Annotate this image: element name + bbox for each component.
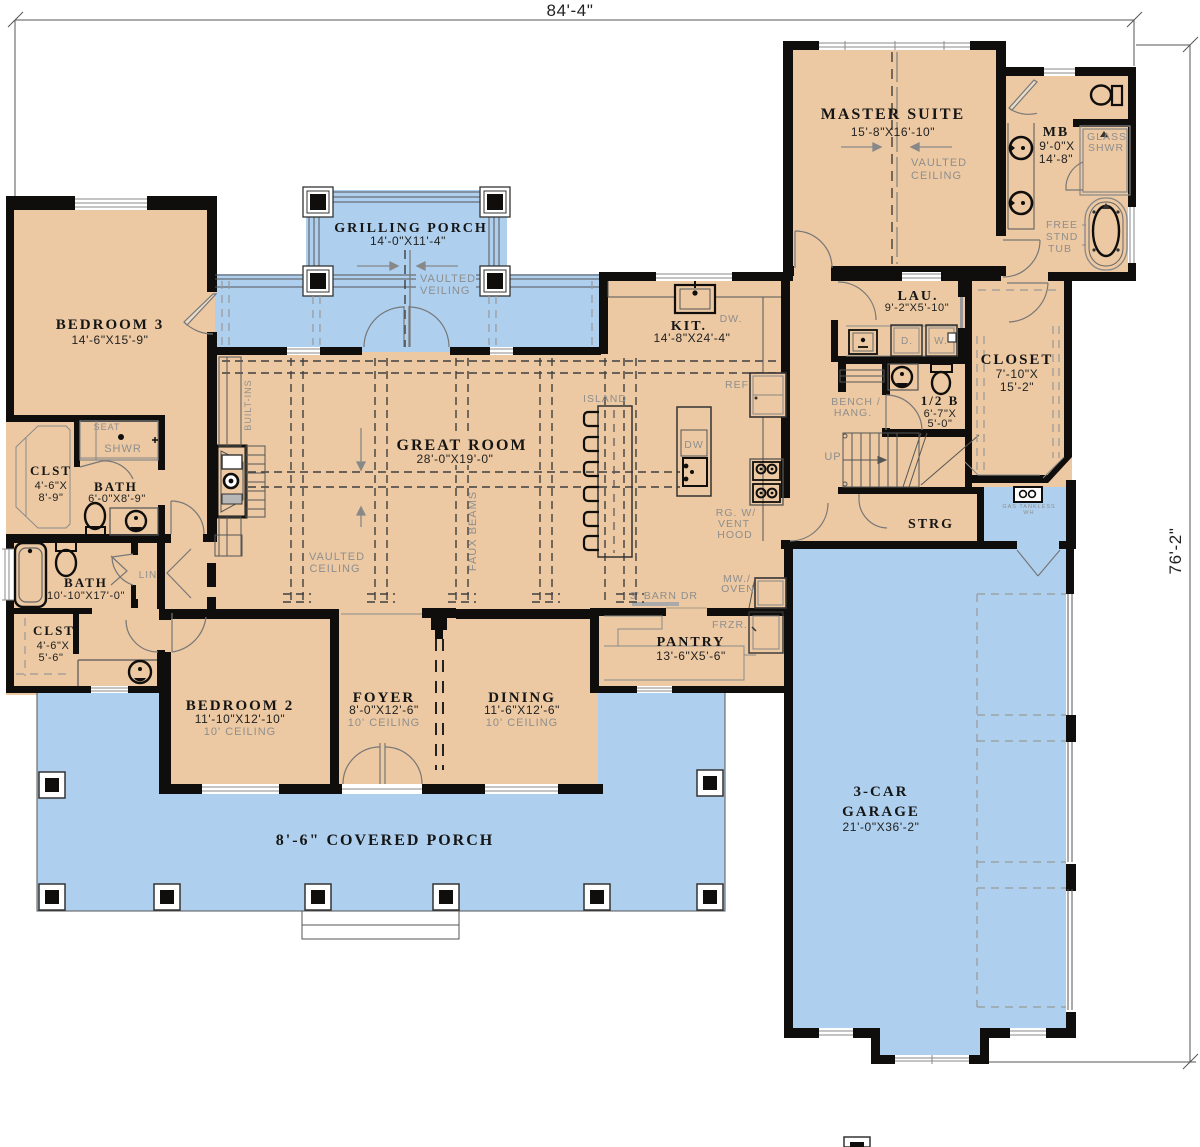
svg-text:10' CEILING: 10' CEILING	[486, 717, 558, 729]
svg-text:PANTRY: PANTRY	[657, 635, 726, 650]
svg-text:5'-0": 5'-0"	[928, 418, 953, 430]
svg-text:CLOSET: CLOSET	[981, 352, 1054, 368]
svg-text:SHWR: SHWR	[104, 443, 142, 455]
svg-text:10' CEILING: 10' CEILING	[204, 726, 276, 738]
svg-text:14'-8"X24'-4": 14'-8"X24'-4"	[654, 331, 731, 345]
svg-text:5'-6": 5'-6"	[39, 652, 64, 664]
svg-text:84'-4": 84'-4"	[547, 1, 594, 20]
svg-text:1/2 B: 1/2 B	[921, 393, 960, 408]
svg-text:14'-8": 14'-8"	[1039, 152, 1073, 166]
svg-text:STRG: STRG	[908, 517, 954, 532]
svg-text:7'-10"X: 7'-10"X	[996, 367, 1039, 381]
svg-text:10' CEILING: 10' CEILING	[348, 717, 420, 729]
svg-text:HOOD: HOOD	[717, 529, 753, 541]
svg-text:4'-6"X: 4'-6"X	[35, 480, 68, 492]
svg-text:STND: STND	[1046, 231, 1079, 243]
svg-text:REF: REF	[725, 379, 749, 391]
svg-text:SEAT: SEAT	[94, 422, 121, 432]
svg-text:TUB: TUB	[1048, 243, 1072, 255]
svg-text:FREE: FREE	[1046, 219, 1078, 231]
svg-text:13'-6"X5'-6": 13'-6"X5'-6"	[656, 649, 726, 663]
svg-text:MB: MB	[1043, 125, 1070, 140]
svg-text:BATH: BATH	[64, 575, 108, 590]
svg-text:HANG.: HANG.	[834, 407, 872, 419]
svg-text:LIN: LIN	[139, 570, 158, 581]
svg-text:UP: UP	[824, 451, 841, 463]
svg-text:76'-2": 76'-2"	[1166, 528, 1185, 575]
svg-text:28'-0"X19'-0": 28'-0"X19'-0"	[417, 452, 494, 466]
svg-text:6'-0"X8'-9": 6'-0"X8'-9"	[88, 493, 146, 505]
svg-text:VAULTED: VAULTED	[911, 157, 967, 169]
svg-text:WH: WH	[1023, 510, 1034, 516]
svg-text:8'-6" COVERED PORCH: 8'-6" COVERED PORCH	[276, 832, 494, 849]
svg-text:8'-9": 8'-9"	[39, 492, 64, 504]
svg-text:DW.: DW.	[720, 313, 743, 325]
svg-text:11'-6"X12'-6": 11'-6"X12'-6"	[484, 703, 560, 717]
svg-text:DW: DW	[684, 439, 704, 451]
svg-text:9'-0"X: 9'-0"X	[1039, 139, 1075, 153]
svg-text:15'-8"X16'-10": 15'-8"X16'-10"	[851, 125, 935, 139]
svg-text:4'-6"X: 4'-6"X	[37, 640, 70, 652]
svg-text:9'-2"X5'-10": 9'-2"X5'-10"	[885, 302, 949, 314]
svg-text:CEILING: CEILING	[911, 170, 962, 182]
svg-text:BEDROOM 3: BEDROOM 3	[56, 317, 164, 333]
svg-text:14'-6"X15'-9": 14'-6"X15'-9"	[72, 333, 149, 347]
svg-text:VAULTED: VAULTED	[420, 273, 476, 285]
svg-text:3' BARN DR: 3' BARN DR	[630, 590, 698, 602]
svg-text:11'-10"X12'-10": 11'-10"X12'-10"	[195, 712, 286, 726]
svg-text:FRZR.: FRZR.	[712, 619, 748, 631]
svg-text:SHWR: SHWR	[1088, 142, 1124, 154]
svg-text:GARAGE: GARAGE	[842, 804, 920, 820]
svg-text:8'-0"X12'-6": 8'-0"X12'-6"	[349, 703, 419, 717]
svg-text:MASTER SUITE: MASTER SUITE	[821, 106, 965, 123]
svg-text:3-CAR: 3-CAR	[854, 784, 909, 800]
svg-text:OVEN: OVEN	[721, 583, 755, 595]
svg-text:W.: W.	[934, 336, 948, 347]
svg-text:FAUX BEAMS: FAUX BEAMS	[467, 491, 479, 571]
svg-text:ISLAND: ISLAND	[583, 393, 627, 405]
svg-text:CLST: CLST	[33, 623, 75, 638]
svg-text:CLST: CLST	[30, 463, 72, 478]
svg-text:D.: D.	[901, 336, 913, 347]
svg-text:BUILT-INS: BUILT-INS	[243, 379, 253, 430]
svg-text:21'-0"X36'-2": 21'-0"X36'-2"	[843, 820, 920, 834]
svg-text:15'-2": 15'-2"	[1000, 380, 1034, 394]
svg-text:14'-0"X11'-4": 14'-0"X11'-4"	[370, 234, 446, 248]
svg-text:BATH: BATH	[94, 479, 138, 494]
svg-text:VAULTED: VAULTED	[309, 551, 365, 563]
svg-text:CEILING: CEILING	[309, 563, 360, 575]
svg-text:VEILING: VEILING	[420, 285, 470, 297]
svg-text:10'-10"X17'-0": 10'-10"X17'-0"	[47, 590, 125, 602]
